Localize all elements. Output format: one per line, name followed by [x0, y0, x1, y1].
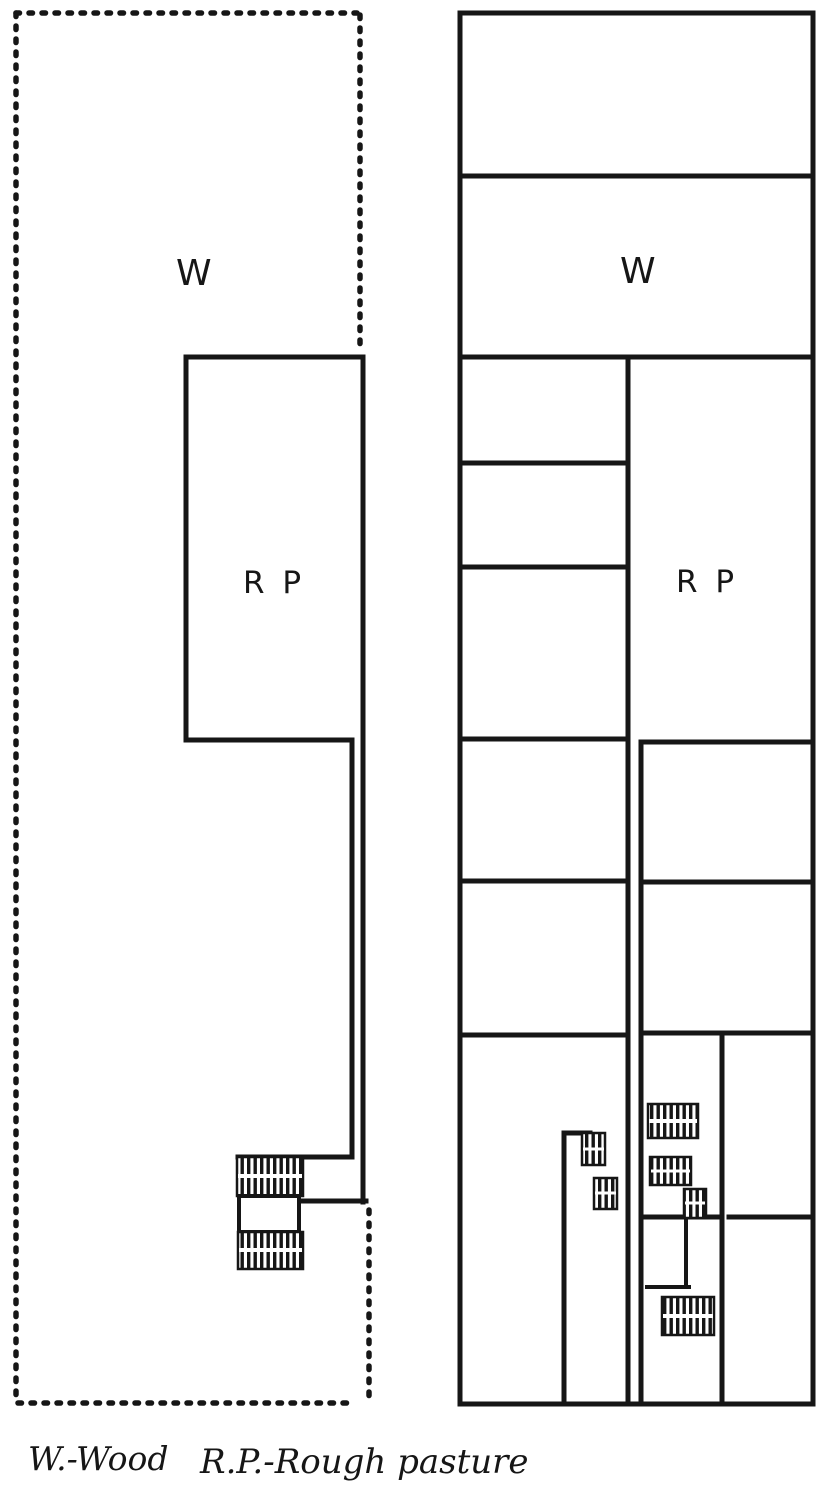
right-parcel-boundary	[460, 13, 813, 1404]
farmyard-outline	[239, 1196, 299, 1232]
farmstead-pen-fence	[647, 1218, 689, 1287]
left-parcel: W R P	[16, 13, 369, 1403]
legend-rough-pasture-entry: R.P.-Rough pasture	[199, 1442, 529, 1482]
left-rough-pasture-label: R P	[243, 565, 305, 601]
land-use-map: W R P	[0, 0, 831, 1500]
legend: W.-Wood R.P.-Rough pasture	[28, 1439, 529, 1482]
legend-wood-entry: W.-Wood	[28, 1439, 169, 1478]
field-divider-vertical-lower-left	[564, 1133, 590, 1404]
map-sheet: W R P	[0, 0, 831, 1500]
right-rough-pasture-label: R P	[676, 564, 738, 600]
right-parcel: W R P	[460, 13, 813, 1404]
left-rough-pasture-enclosure	[186, 357, 363, 1157]
right-wood-label: W	[620, 251, 660, 292]
left-wood-label: W	[176, 253, 216, 294]
left-farm-buildings	[237, 1157, 303, 1269]
